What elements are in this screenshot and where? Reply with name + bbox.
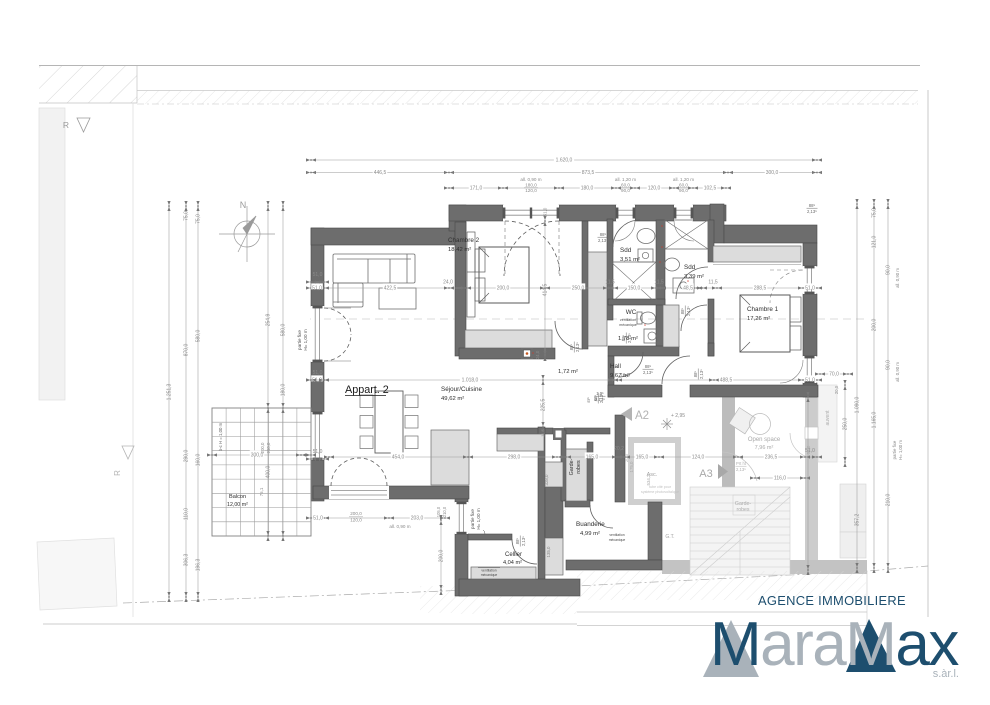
svg-text:partie fixe: partie fixe — [297, 330, 302, 350]
svg-text:24,0: 24,0 — [535, 350, 540, 359]
svg-text:328,0: 328,0 — [544, 474, 549, 486]
svg-text:A3: A3 — [699, 468, 712, 480]
svg-text:90,0: 90,0 — [886, 265, 892, 275]
svg-text:2,13⁵: 2,13⁵ — [599, 393, 604, 403]
svg-text:4,99 m²: 4,99 m² — [580, 531, 600, 537]
svg-text:20,0: 20,0 — [624, 453, 629, 462]
svg-text:1,72 m²: 1,72 m² — [558, 369, 578, 375]
svg-text:200,0: 200,0 — [260, 442, 265, 454]
svg-text:A2: A2 — [635, 410, 649, 422]
svg-text:48,5: 48,5 — [683, 285, 693, 291]
svg-text:mécanique: mécanique — [609, 538, 626, 542]
svg-text:236,5: 236,5 — [765, 454, 778, 460]
svg-text:200,0: 200,0 — [439, 550, 445, 563]
svg-text:Buanderie: Buanderie — [576, 521, 605, 528]
svg-text:R: R — [113, 470, 122, 476]
svg-text:AGENCE IMMOBILIERE: AGENCE IMMOBILIERE — [758, 593, 906, 608]
svg-text:306,3: 306,3 — [184, 554, 190, 567]
svg-text:290,0: 290,0 — [184, 450, 190, 463]
svg-text:all. 0,90 m: all. 0,90 m — [895, 362, 900, 382]
svg-text:51,0: 51,0 — [313, 515, 323, 521]
svg-text:51,0: 51,0 — [543, 207, 548, 216]
svg-text:488,5: 488,5 — [720, 377, 733, 383]
svg-text:système photovoltaïque: système photovoltaïque — [641, 490, 679, 494]
svg-text:all. 1,20 m: all. 1,20 m — [615, 177, 636, 182]
svg-text:120,0: 120,0 — [648, 185, 661, 191]
svg-text:+ 2,95: + 2,95 — [671, 413, 685, 419]
svg-text:tube cité pour: tube cité pour — [649, 485, 672, 489]
svg-text:175,0: 175,0 — [629, 461, 634, 473]
svg-text:all. 1,20 m: all. 1,20 m — [673, 177, 694, 182]
svg-text:11,5: 11,5 — [541, 428, 546, 437]
svg-text:s.àr.l.: s.àr.l. — [933, 668, 959, 680]
svg-text:200,0: 200,0 — [497, 285, 510, 291]
svg-text:90,0: 90,0 — [886, 360, 892, 370]
svg-text:200,0: 200,0 — [350, 511, 362, 516]
svg-text:60,0: 60,0 — [679, 183, 688, 188]
svg-text:51,0: 51,0 — [806, 445, 811, 454]
svg-text:400,0: 400,0 — [266, 466, 272, 479]
svg-text:7,96 m²: 7,96 m² — [755, 445, 774, 451]
svg-text:20,2: 20,2 — [614, 446, 624, 452]
svg-text:robes: robes — [737, 507, 750, 513]
svg-text:120,0: 120,0 — [350, 518, 362, 523]
svg-text:Sdd: Sdd — [620, 247, 632, 254]
svg-text:120,0: 120,0 — [525, 188, 537, 193]
svg-text:Séjour/Cuisine: Séjour/Cuisine — [441, 386, 482, 393]
svg-text:H= 1,00 m: H= 1,00 m — [476, 508, 481, 529]
svg-text:Balcon: Balcon — [229, 494, 246, 500]
svg-text:102,5: 102,5 — [704, 185, 717, 191]
svg-text:422,5: 422,5 — [384, 285, 397, 291]
svg-text:all. 0,90 m: all. 0,90 m — [389, 524, 410, 529]
svg-text:1.018,0: 1.018,0 — [462, 377, 479, 383]
svg-text:165,0: 165,0 — [636, 454, 649, 460]
svg-text:116,0: 116,0 — [774, 475, 786, 481]
svg-text:110,0: 110,0 — [184, 508, 190, 520]
svg-text:2,13⁵: 2,13⁵ — [807, 209, 817, 214]
svg-text:2,13⁵: 2,13⁵ — [575, 342, 580, 352]
svg-text:17,26 m²: 17,26 m² — [747, 316, 770, 322]
svg-text:11,5: 11,5 — [620, 373, 630, 379]
svg-text:60,0: 60,0 — [621, 183, 630, 188]
svg-text:414,5: 414,5 — [543, 284, 549, 297]
svg-text:2,13⁵: 2,13⁵ — [521, 536, 526, 546]
svg-text:Garde-: Garde- — [569, 458, 575, 475]
svg-text:12,00 m²: 12,00 m² — [227, 502, 248, 508]
svg-text:Cellier: Cellier — [505, 552, 522, 558]
svg-text:partie fixe: partie fixe — [892, 440, 897, 459]
svg-text:250,0: 250,0 — [843, 418, 849, 431]
svg-text:250,0: 250,0 — [572, 285, 585, 291]
svg-text:873,5: 873,5 — [582, 170, 595, 176]
svg-text:R: R — [63, 120, 69, 130]
svg-text:88⁵: 88⁵ — [680, 308, 685, 315]
svg-text:70,0: 70,0 — [829, 371, 839, 377]
svg-text:all. 0,90 m: all. 0,90 m — [520, 177, 541, 182]
svg-text:51,0: 51,0 — [805, 377, 815, 383]
svg-text:454,0: 454,0 — [392, 454, 405, 460]
svg-text:90,0: 90,0 — [621, 188, 630, 193]
svg-text:210,0: 210,0 — [266, 442, 271, 454]
svg-text:300,0: 300,0 — [766, 170, 779, 176]
svg-text:ventilation: ventilation — [481, 569, 496, 573]
svg-text:2,13⁵: 2,13⁵ — [643, 370, 653, 375]
svg-text:75,1: 75,1 — [259, 487, 264, 496]
svg-text:180,0: 180,0 — [581, 185, 594, 191]
svg-text:ventilation: ventilation — [609, 533, 624, 537]
svg-text:51,0: 51,0 — [313, 449, 323, 455]
svg-text:51,0: 51,0 — [312, 285, 322, 291]
svg-text:all. 0,90 m: all. 0,90 m — [895, 268, 900, 288]
svg-text:446,5: 446,5 — [374, 170, 387, 176]
svg-text:11,5: 11,5 — [654, 280, 664, 286]
svg-text:150,0: 150,0 — [628, 285, 641, 291]
svg-text:ventilation: ventilation — [620, 318, 636, 322]
svg-text:2,13⁵: 2,13⁵ — [736, 467, 746, 472]
svg-text:auvent: auvent — [825, 410, 831, 426]
svg-text:88⁵: 88⁵ — [569, 344, 574, 351]
svg-text:51,0: 51,0 — [313, 272, 323, 278]
svg-text:203,0: 203,0 — [411, 515, 424, 521]
svg-text:20,0: 20,0 — [834, 385, 839, 394]
svg-text:mécanique: mécanique — [481, 573, 498, 577]
svg-text:90,0: 90,0 — [679, 188, 688, 193]
svg-text:Prt ht: Prt ht — [736, 461, 747, 466]
svg-text:88⁵: 88⁵ — [621, 335, 626, 342]
svg-text:G.T.: G.T. — [665, 534, 674, 540]
svg-text:4,04 m²: 4,04 m² — [503, 560, 522, 566]
svg-text:88⁵: 88⁵ — [593, 395, 598, 402]
svg-text:N: N — [240, 200, 247, 210]
svg-text:WC: WC — [626, 309, 637, 316]
svg-text:135,0: 135,0 — [546, 546, 551, 558]
svg-text:51,0: 51,0 — [805, 285, 815, 291]
svg-text:88⁵: 88⁵ — [809, 203, 816, 208]
svg-text:Chambre 1: Chambre 1 — [747, 306, 779, 313]
svg-text:mécanique: mécanique — [619, 323, 637, 327]
svg-text:24,0: 24,0 — [443, 280, 453, 286]
svg-text:180,0: 180,0 — [281, 384, 287, 397]
svg-text:Appart. 2: Appart. 2 — [345, 384, 389, 396]
svg-text:MaraMax: MaraMax — [710, 610, 959, 679]
svg-text:298,0: 298,0 — [508, 454, 521, 460]
svg-text:1.090,0: 1.090,0 — [855, 396, 861, 413]
svg-text:88⁵: 88⁵ — [515, 538, 520, 545]
svg-text:11,5: 11,5 — [605, 280, 615, 286]
svg-text:51,0: 51,0 — [313, 370, 323, 376]
svg-text:121,0: 121,0 — [872, 236, 878, 249]
svg-text:H= 1,00 m: H= 1,00 m — [303, 329, 308, 350]
svg-text:88⁵: 88⁵ — [693, 371, 698, 378]
svg-text:534,2: 534,2 — [646, 474, 651, 486]
svg-text:210,0: 210,0 — [886, 494, 892, 507]
svg-text:49,62 m²: 49,62 m² — [441, 396, 464, 402]
svg-text:196,3: 196,3 — [196, 559, 202, 572]
svg-text:18,42 m²: 18,42 m² — [448, 247, 471, 253]
svg-text:160,0: 160,0 — [196, 454, 202, 467]
svg-text:357,2: 357,2 — [855, 514, 861, 527]
svg-text:580,0: 580,0 — [281, 324, 287, 337]
svg-text:88⁵: 88⁵ — [645, 364, 652, 369]
svg-text:225,5: 225,5 — [541, 399, 547, 412]
svg-text:200,0: 200,0 — [872, 319, 878, 332]
svg-text:11,5: 11,5 — [708, 280, 718, 286]
svg-text:Open space: Open space — [748, 437, 781, 443]
svg-text:288,5: 288,5 — [754, 285, 767, 291]
svg-text:254,9: 254,9 — [266, 314, 272, 327]
svg-text:H= 1,00 m: H= 1,00 m — [898, 440, 903, 460]
svg-text:124,0: 124,0 — [692, 454, 705, 460]
svg-text:3,51 m²: 3,51 m² — [620, 257, 640, 263]
svg-text:Sdd: Sdd — [684, 264, 696, 271]
svg-text:75,0: 75,0 — [196, 214, 202, 224]
svg-text:75,0: 75,0 — [184, 211, 190, 221]
svg-text:Chambre 2: Chambre 2 — [448, 237, 480, 244]
svg-text:210,0: 210,0 — [442, 506, 447, 517]
svg-text:3,39 m²: 3,39 m² — [684, 274, 704, 280]
svg-text:75,0: 75,0 — [872, 208, 878, 218]
svg-text:1.251,3: 1.251,3 — [167, 383, 173, 400]
svg-text:b-c H = 1,00 m: b-c H = 1,00 m — [218, 422, 223, 451]
svg-text:2,13⁵: 2,13⁵ — [686, 306, 691, 316]
svg-text:165,0: 165,0 — [586, 454, 599, 460]
svg-text:robes: robes — [576, 460, 582, 474]
svg-text:180,0: 180,0 — [525, 183, 537, 188]
svg-text:2,13⁵: 2,13⁵ — [627, 333, 632, 343]
svg-text:2,13⁵: 2,13⁵ — [699, 369, 704, 379]
svg-text:2,13⁵: 2,13⁵ — [598, 238, 608, 243]
svg-text:88⁵: 88⁵ — [600, 232, 607, 237]
svg-text:870,0: 870,0 — [184, 344, 190, 357]
svg-text:1.620,0: 1.620,0 — [556, 157, 573, 163]
svg-text:Hall: Hall — [610, 363, 621, 370]
svg-text:171,0: 171,0 — [470, 185, 483, 191]
svg-text:580,0: 580,0 — [196, 330, 202, 343]
svg-text:EP: EP — [586, 397, 591, 403]
svg-text:1.165,0: 1.165,0 — [872, 411, 878, 428]
svg-text:partie fixe: partie fixe — [470, 509, 475, 529]
